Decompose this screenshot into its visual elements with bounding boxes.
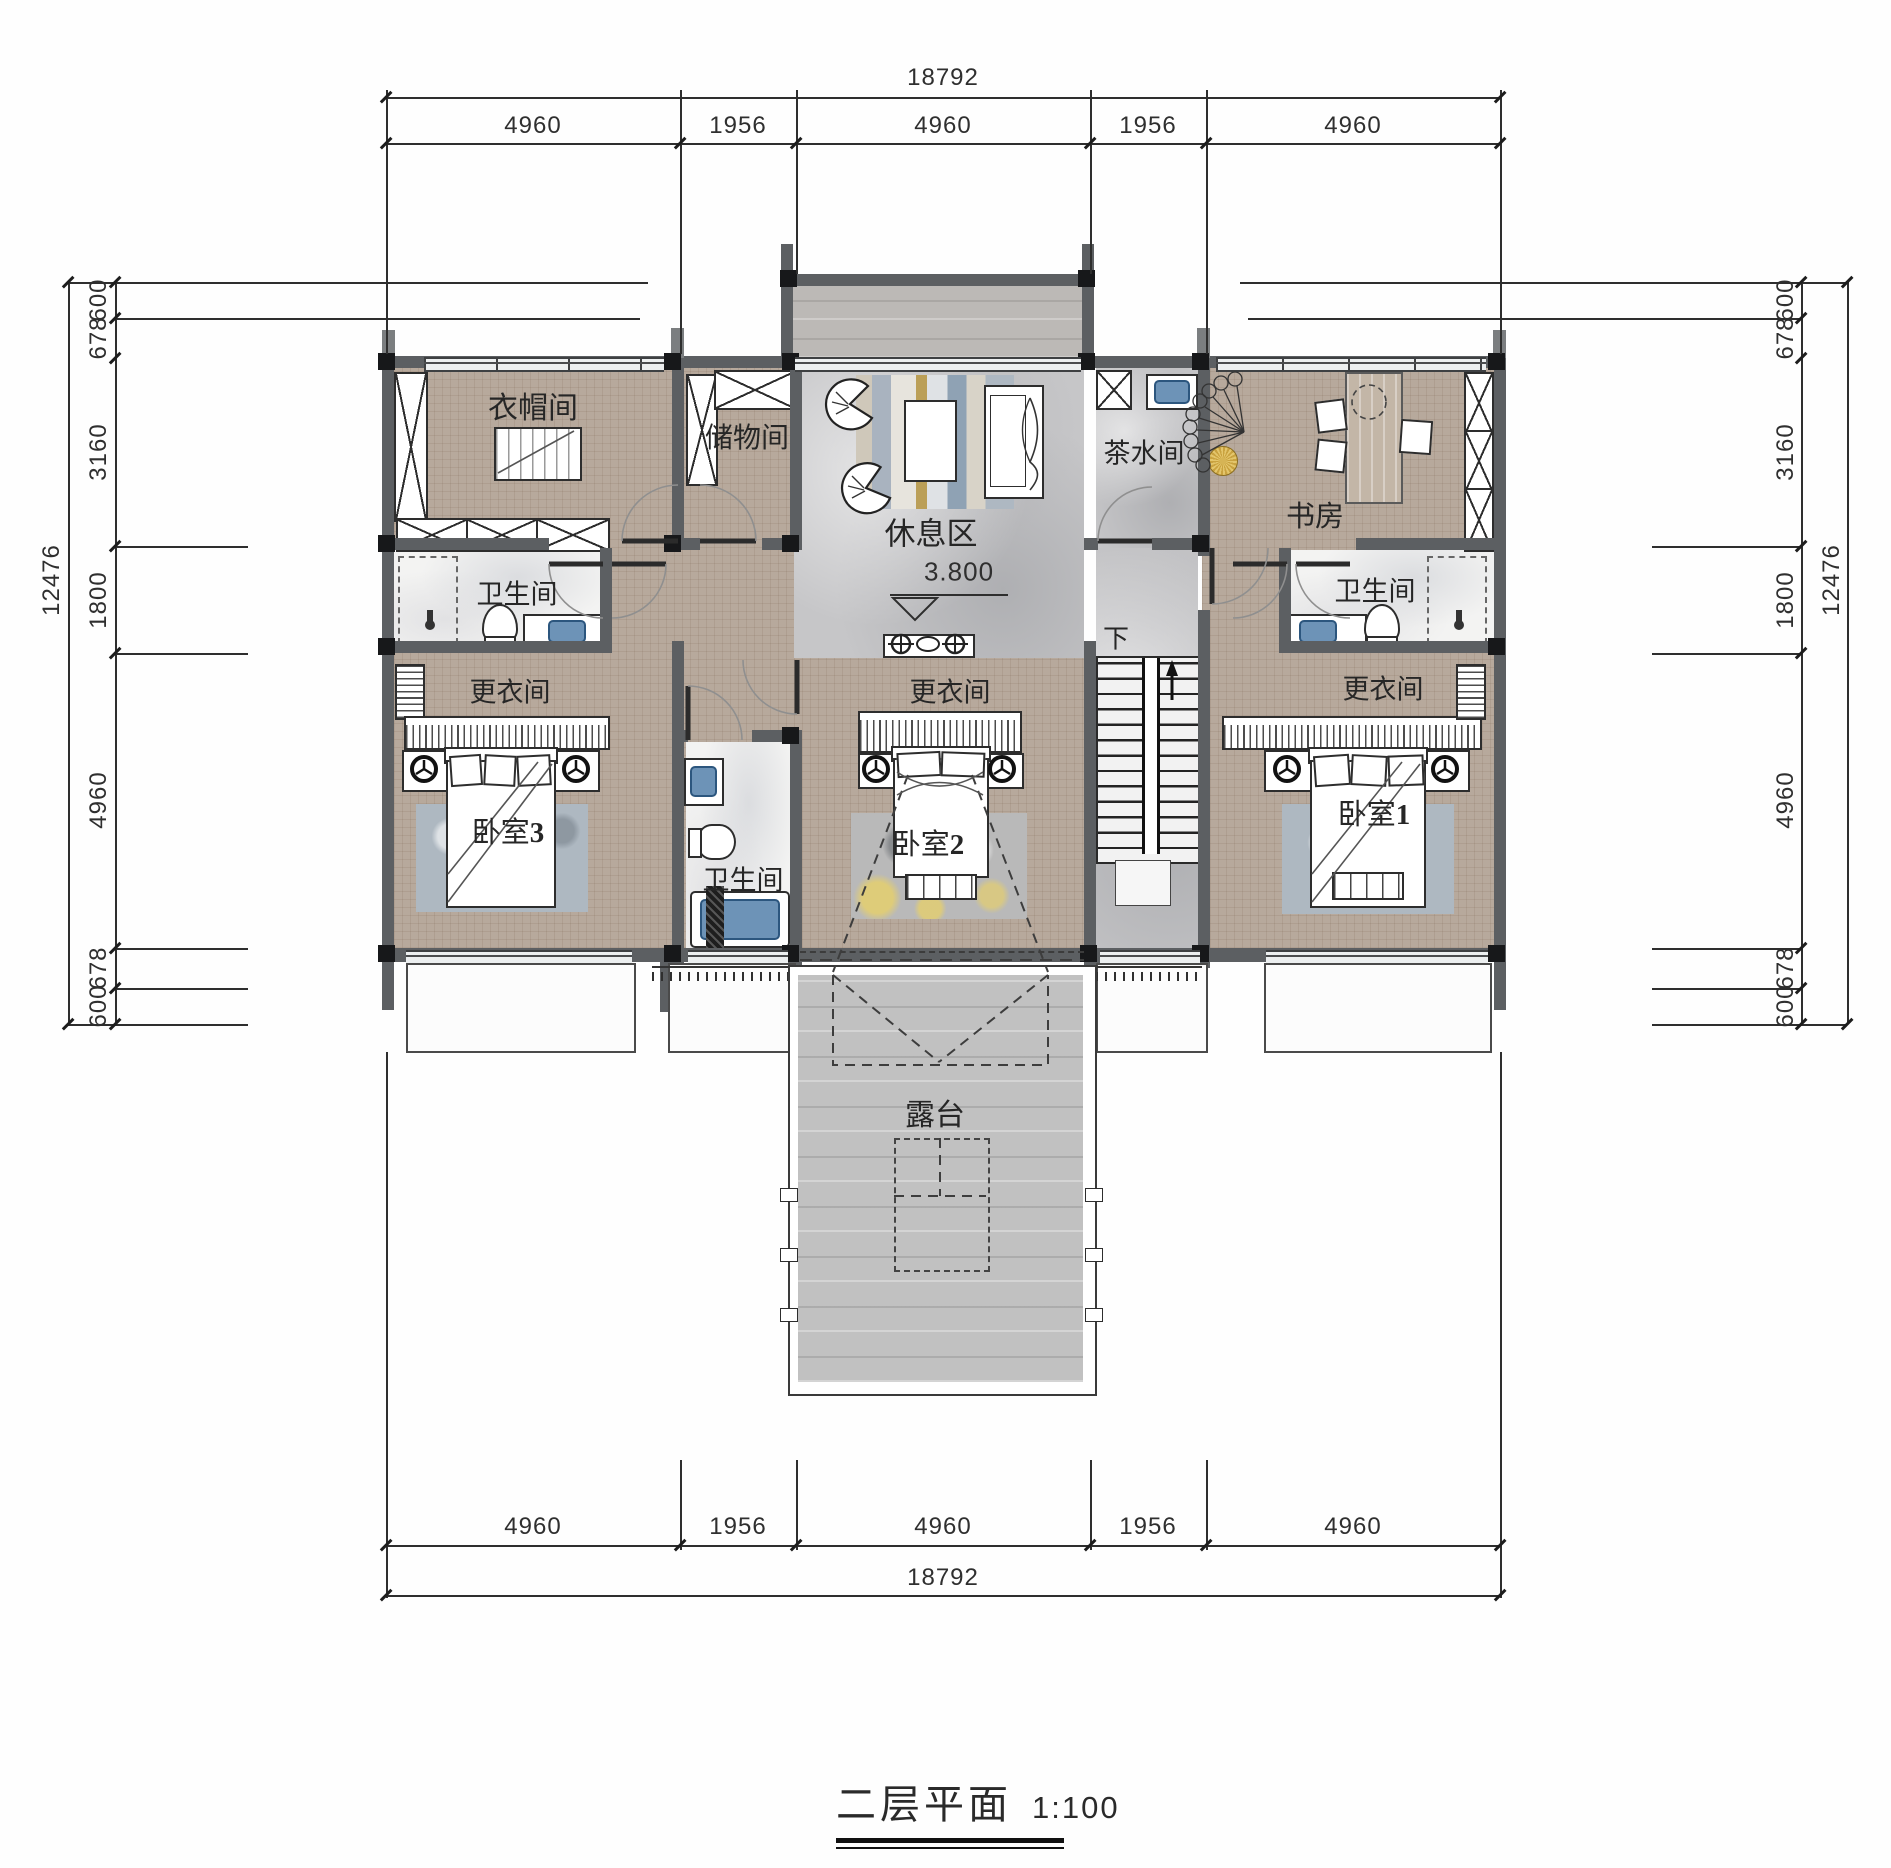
column: [782, 727, 799, 744]
label-bath-center: 卫生间: [703, 859, 784, 898]
bed1-nightstand-left: [1264, 750, 1312, 792]
wall-outer-left: [382, 356, 394, 1010]
bath-center-basin: [690, 766, 717, 797]
study-chair-3: [1399, 419, 1433, 455]
dim-right-3: 3160: [1772, 423, 1800, 480]
tea-cabinet: [1096, 370, 1132, 410]
bath-right-basin: [1299, 620, 1337, 643]
column: [664, 535, 681, 552]
label-stairs-down: 下: [1103, 619, 1129, 656]
shower-left: [398, 556, 458, 644]
label-bath-left: 卫生间: [477, 573, 558, 612]
dim-right-total: 12476: [1818, 544, 1846, 616]
study-chair-1: [1314, 398, 1348, 433]
study-desk: [1345, 372, 1403, 504]
window-study: [1216, 357, 1486, 372]
wall-stair-right-upper: [1198, 356, 1210, 556]
window-bump: [795, 357, 1081, 372]
wall-bump-top: [781, 274, 1094, 286]
cloakroom-wardrobe-left: [394, 372, 428, 522]
floor-balcony-bump: [793, 286, 1082, 358]
column: [378, 638, 395, 655]
balcony-left: [406, 963, 636, 1053]
bed1-pillow-2: [1350, 754, 1388, 787]
wall-bump-left: [781, 244, 793, 368]
dim-right-5: 4960: [1772, 771, 1800, 828]
terrace-notch: [1085, 1308, 1103, 1322]
bed2-pillow-2: [941, 751, 986, 778]
threshold-strip: [883, 634, 975, 658]
column: [378, 353, 395, 370]
bed3-pillow-1: [449, 754, 483, 787]
label-storage: 储物间: [705, 416, 789, 456]
column: [378, 535, 395, 552]
label-terrace: 露台: [905, 1090, 965, 1134]
column: [1192, 353, 1209, 370]
label-dressing-left: 更衣间: [470, 671, 551, 710]
dim-left-4: 1800: [85, 571, 113, 628]
bed2-nightstand-right: [986, 753, 1024, 789]
dim-right-4: 1800: [1772, 571, 1800, 628]
staircase: [1096, 656, 1202, 864]
bed3-nightstand-left: [402, 750, 448, 792]
shower-right: [1427, 556, 1487, 644]
bed3-pillow-3: [516, 754, 552, 787]
window-cloakroom: [424, 357, 664, 372]
bed1-bench: [1332, 872, 1404, 900]
floorplan-sheet: 衣帽间 储物间 休息区 茶水间 书房 卫生间 卫生间 卫生间 更衣间 更衣间 更…: [0, 0, 1891, 1868]
column: [1488, 945, 1505, 962]
dim-top-2: 1956: [709, 112, 766, 140]
balcony-right: [1264, 963, 1492, 1053]
toilet-center: [698, 824, 736, 860]
dim-bot-2: 1956: [709, 1513, 766, 1541]
drawing-scale: 1:100: [1032, 1790, 1120, 1825]
dim-bot-3: 4960: [914, 1513, 971, 1541]
dim-bot-4: 1956: [1119, 1513, 1176, 1541]
toilet-center-tank: [688, 828, 702, 858]
terrace-dashed-bed: [894, 1138, 990, 1272]
dim-bot-1: 4960: [504, 1513, 561, 1541]
wall-bathC-top-a: [672, 730, 688, 742]
label-dressing-right: 更衣间: [1343, 668, 1424, 707]
bed1-nightstand-right: [1422, 750, 1470, 792]
storage-cabinet-top: [714, 370, 796, 410]
dim-top-4: 1956: [1119, 112, 1176, 140]
terrace-notch: [780, 1308, 798, 1322]
wall-tea-bottom-a: [1084, 538, 1098, 550]
wall-bathL-bottom: [382, 641, 612, 653]
column: [1192, 535, 1209, 552]
label-bedroom2: 卧室2: [892, 821, 965, 863]
label-study: 书房: [1286, 493, 1344, 535]
bath-left-basin: [548, 620, 586, 643]
railing-right: [1096, 966, 1202, 981]
dim-left-3: 3160: [85, 423, 113, 480]
wall-study-bottom: [1356, 538, 1506, 550]
wall-bathL-side: [600, 548, 612, 644]
label-bedroom3: 卧室3: [472, 809, 545, 851]
label-tea: 茶水间: [1104, 432, 1185, 471]
bed1-pillow-3: [1387, 754, 1424, 786]
bed2-bench: [905, 874, 977, 900]
study-bookshelf-2: [1464, 430, 1494, 492]
dressing-right-rail: [1222, 716, 1482, 750]
label-lounge: 休息区: [885, 509, 978, 554]
column: [1078, 270, 1095, 287]
wall-cloak-bottom-a: [382, 538, 549, 550]
dim-bot-5: 4960: [1324, 1513, 1381, 1541]
dim-top-total: 18792: [907, 64, 979, 92]
label-bedroom1: 卧室1: [1338, 791, 1411, 833]
column: [378, 945, 395, 962]
column: [664, 945, 681, 962]
label-bath-right: 卫生间: [1335, 570, 1416, 609]
wall-storage-lounge: [790, 358, 802, 548]
dim-top-1: 4960: [504, 112, 561, 140]
dressing-left-rail: [404, 716, 610, 750]
bed1-pillow-1: [1313, 754, 1351, 787]
label-dressing-center: 更衣间: [910, 671, 991, 710]
column: [782, 535, 799, 552]
railing-left: [652, 966, 794, 981]
column: [780, 270, 797, 287]
dim-left-5: 4960: [85, 771, 113, 828]
stair-landing: [1115, 860, 1171, 906]
bed2-pillow-1: [896, 751, 941, 778]
tea-sink-basin: [1154, 380, 1190, 404]
terrace-notch: [1085, 1248, 1103, 1262]
bed3-nightstand-right: [554, 750, 600, 792]
level-annotation: 3.800: [924, 557, 994, 588]
terrace-notch: [1085, 1188, 1103, 1202]
wall-bathR-bottom: [1279, 641, 1506, 653]
drawing-title: 二层平面: [836, 1782, 1012, 1827]
terrace-notch: [780, 1248, 798, 1262]
dim-left-total: 12476: [38, 544, 66, 616]
terrace-notch: [780, 1188, 798, 1202]
dressing-left-rail-vert: [395, 664, 425, 720]
wall-bathR-side: [1279, 548, 1291, 644]
cloakroom-island: [494, 427, 582, 481]
wall-bump-right: [1082, 244, 1094, 368]
wall-bathC-left: [672, 641, 684, 968]
wall-bathC-right: [790, 730, 802, 968]
stair-stringer: [1142, 658, 1160, 854]
dim-top-5: 4960: [1324, 112, 1381, 140]
study-stool-gold: [1208, 446, 1238, 476]
dim-bot-total: 18792: [907, 1564, 979, 1592]
wall-stair-right-lower: [1198, 610, 1210, 968]
bed3-pillow-2: [483, 754, 517, 787]
dim-top-3: 4960: [914, 112, 971, 140]
wall-outer-right: [1494, 356, 1506, 1010]
lounge-coffee-table: [904, 400, 957, 482]
study-bookshelf-1: [1464, 372, 1494, 434]
column: [1488, 353, 1505, 370]
label-cloakroom: 衣帽间: [488, 383, 578, 427]
title-block: 二层平面1:100: [836, 1772, 1120, 1849]
column: [664, 353, 681, 370]
lounge-sofa-seat: [990, 395, 1026, 487]
wall-cloak-storage: [672, 358, 684, 548]
dressing-right-rail-vert: [1456, 664, 1486, 720]
wall-stair-left: [1084, 641, 1096, 968]
study-chair-2: [1314, 439, 1347, 474]
column: [1488, 638, 1505, 655]
